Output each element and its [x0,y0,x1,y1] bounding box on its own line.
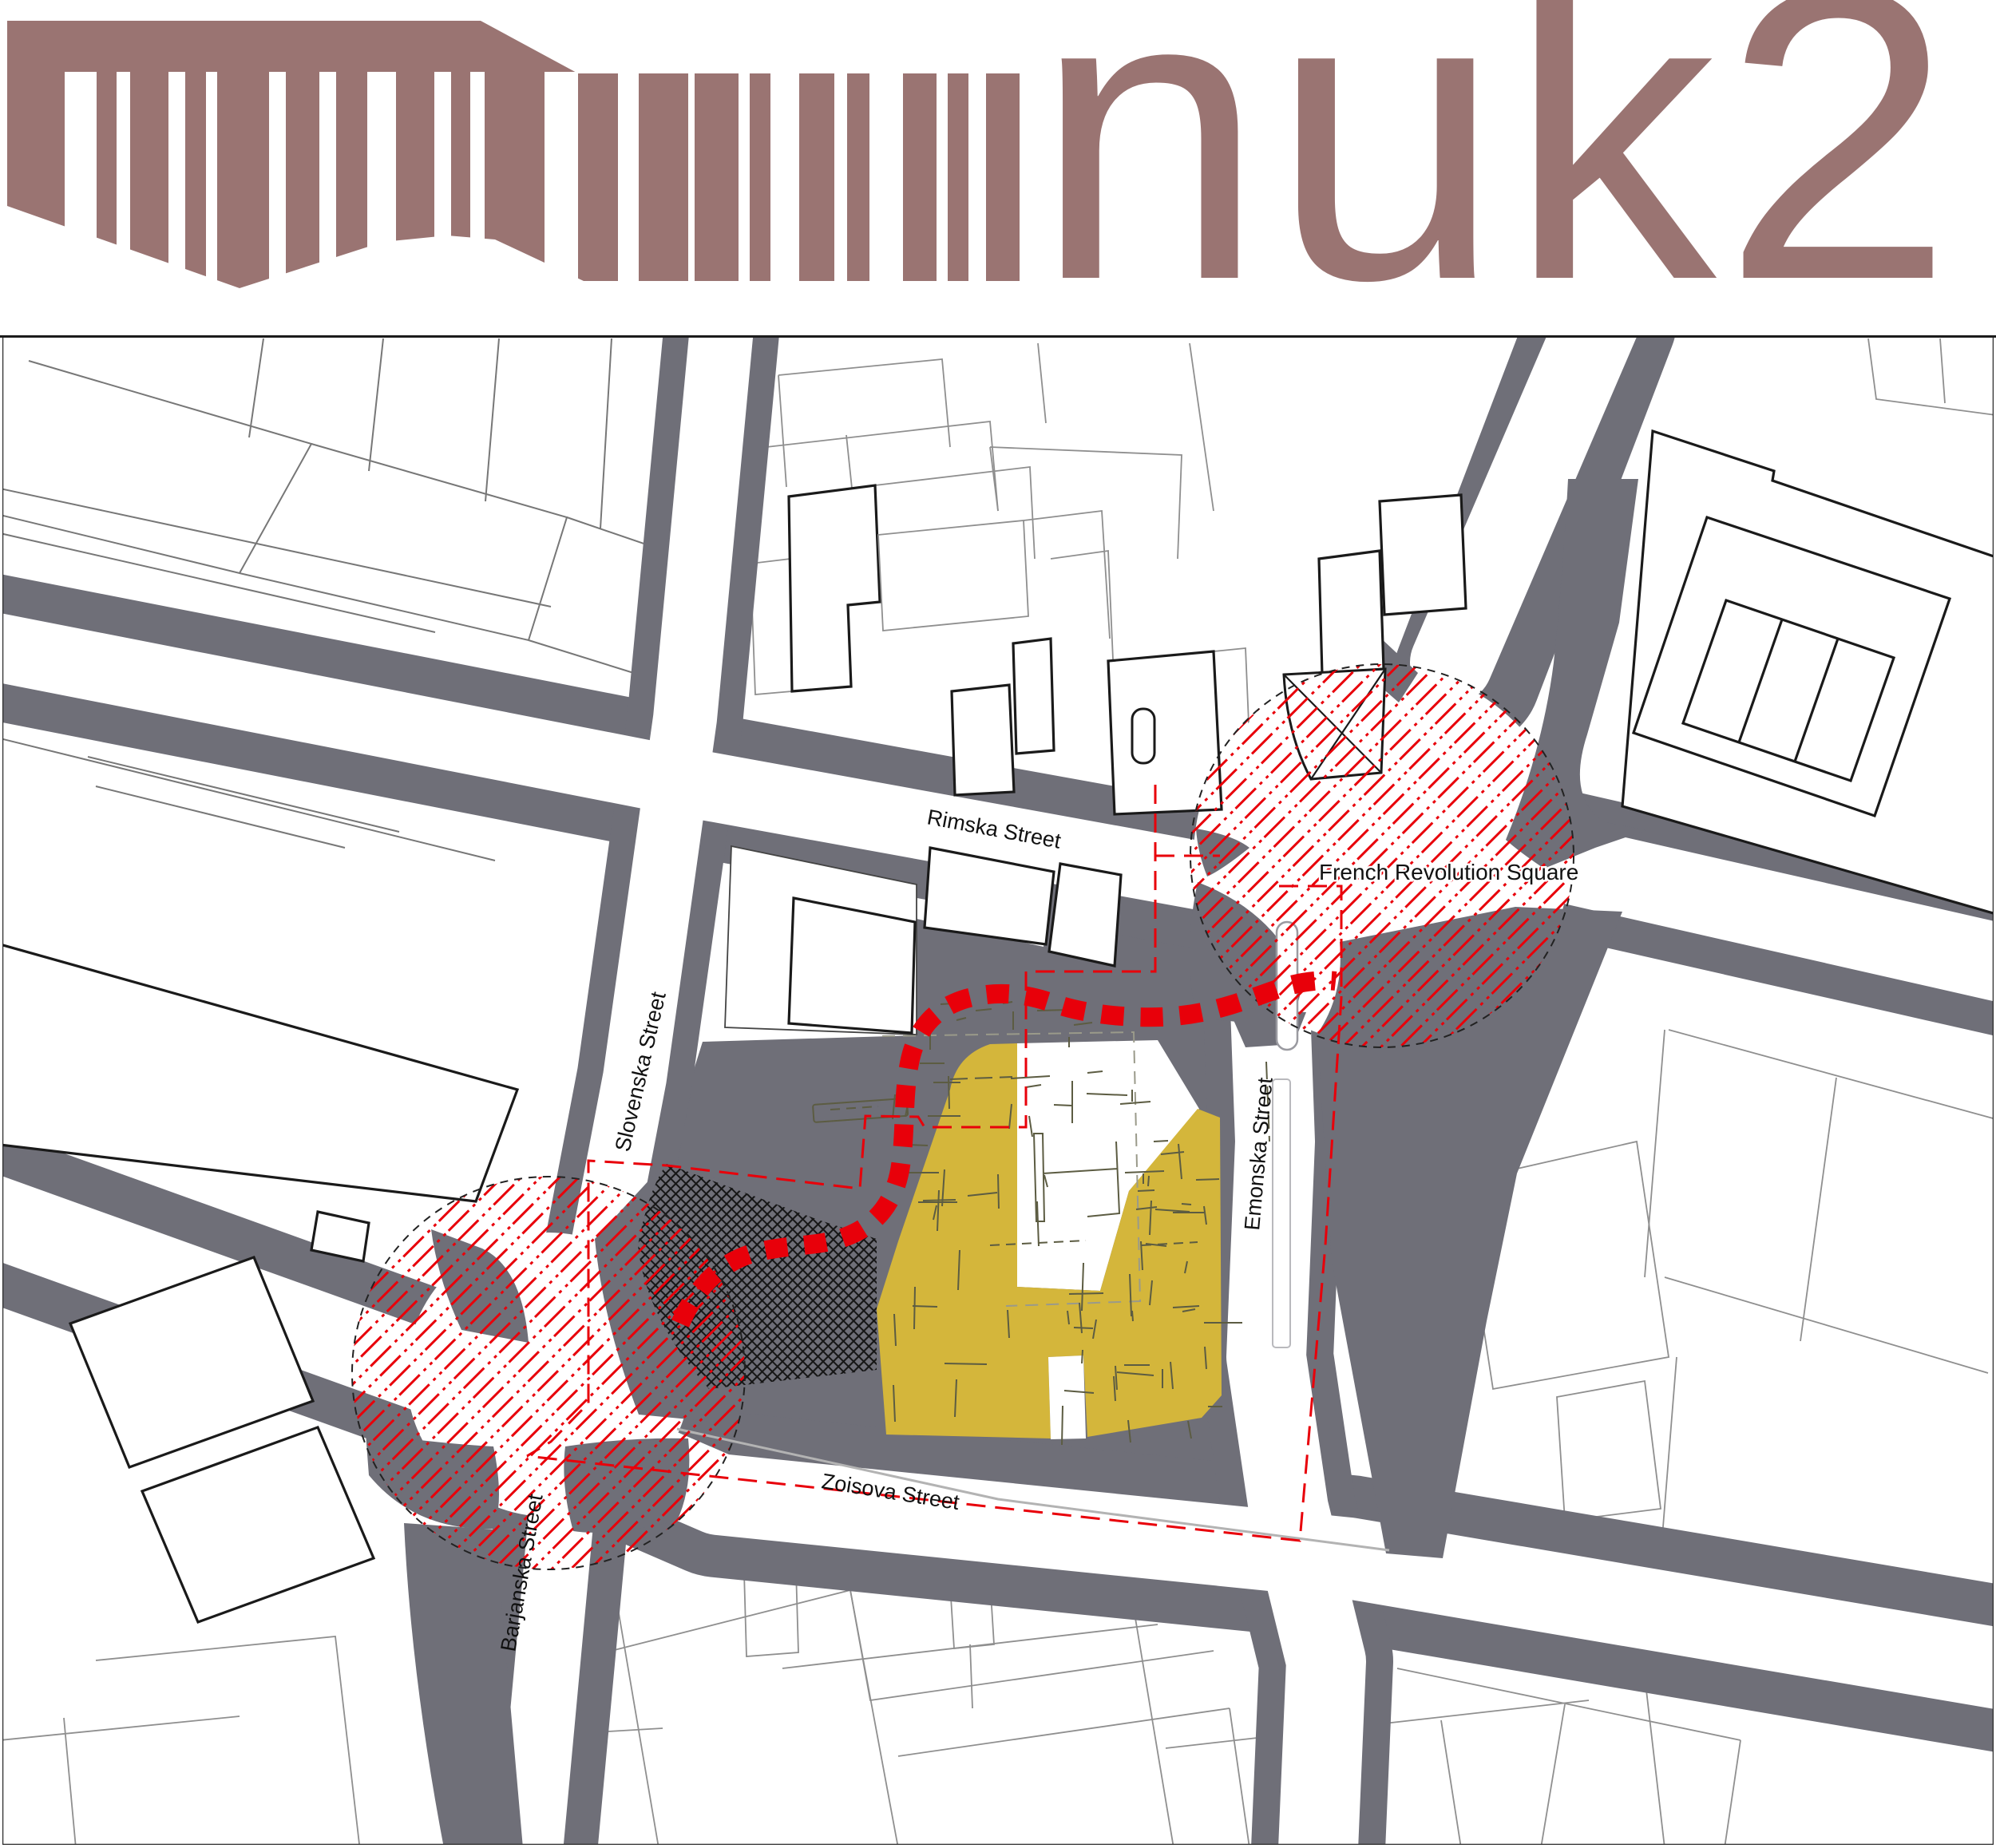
svg-text:nuk2: nuk2 [1034,0,1960,366]
svg-text:French Revolution Square: French Revolution Square [1319,860,1578,884]
